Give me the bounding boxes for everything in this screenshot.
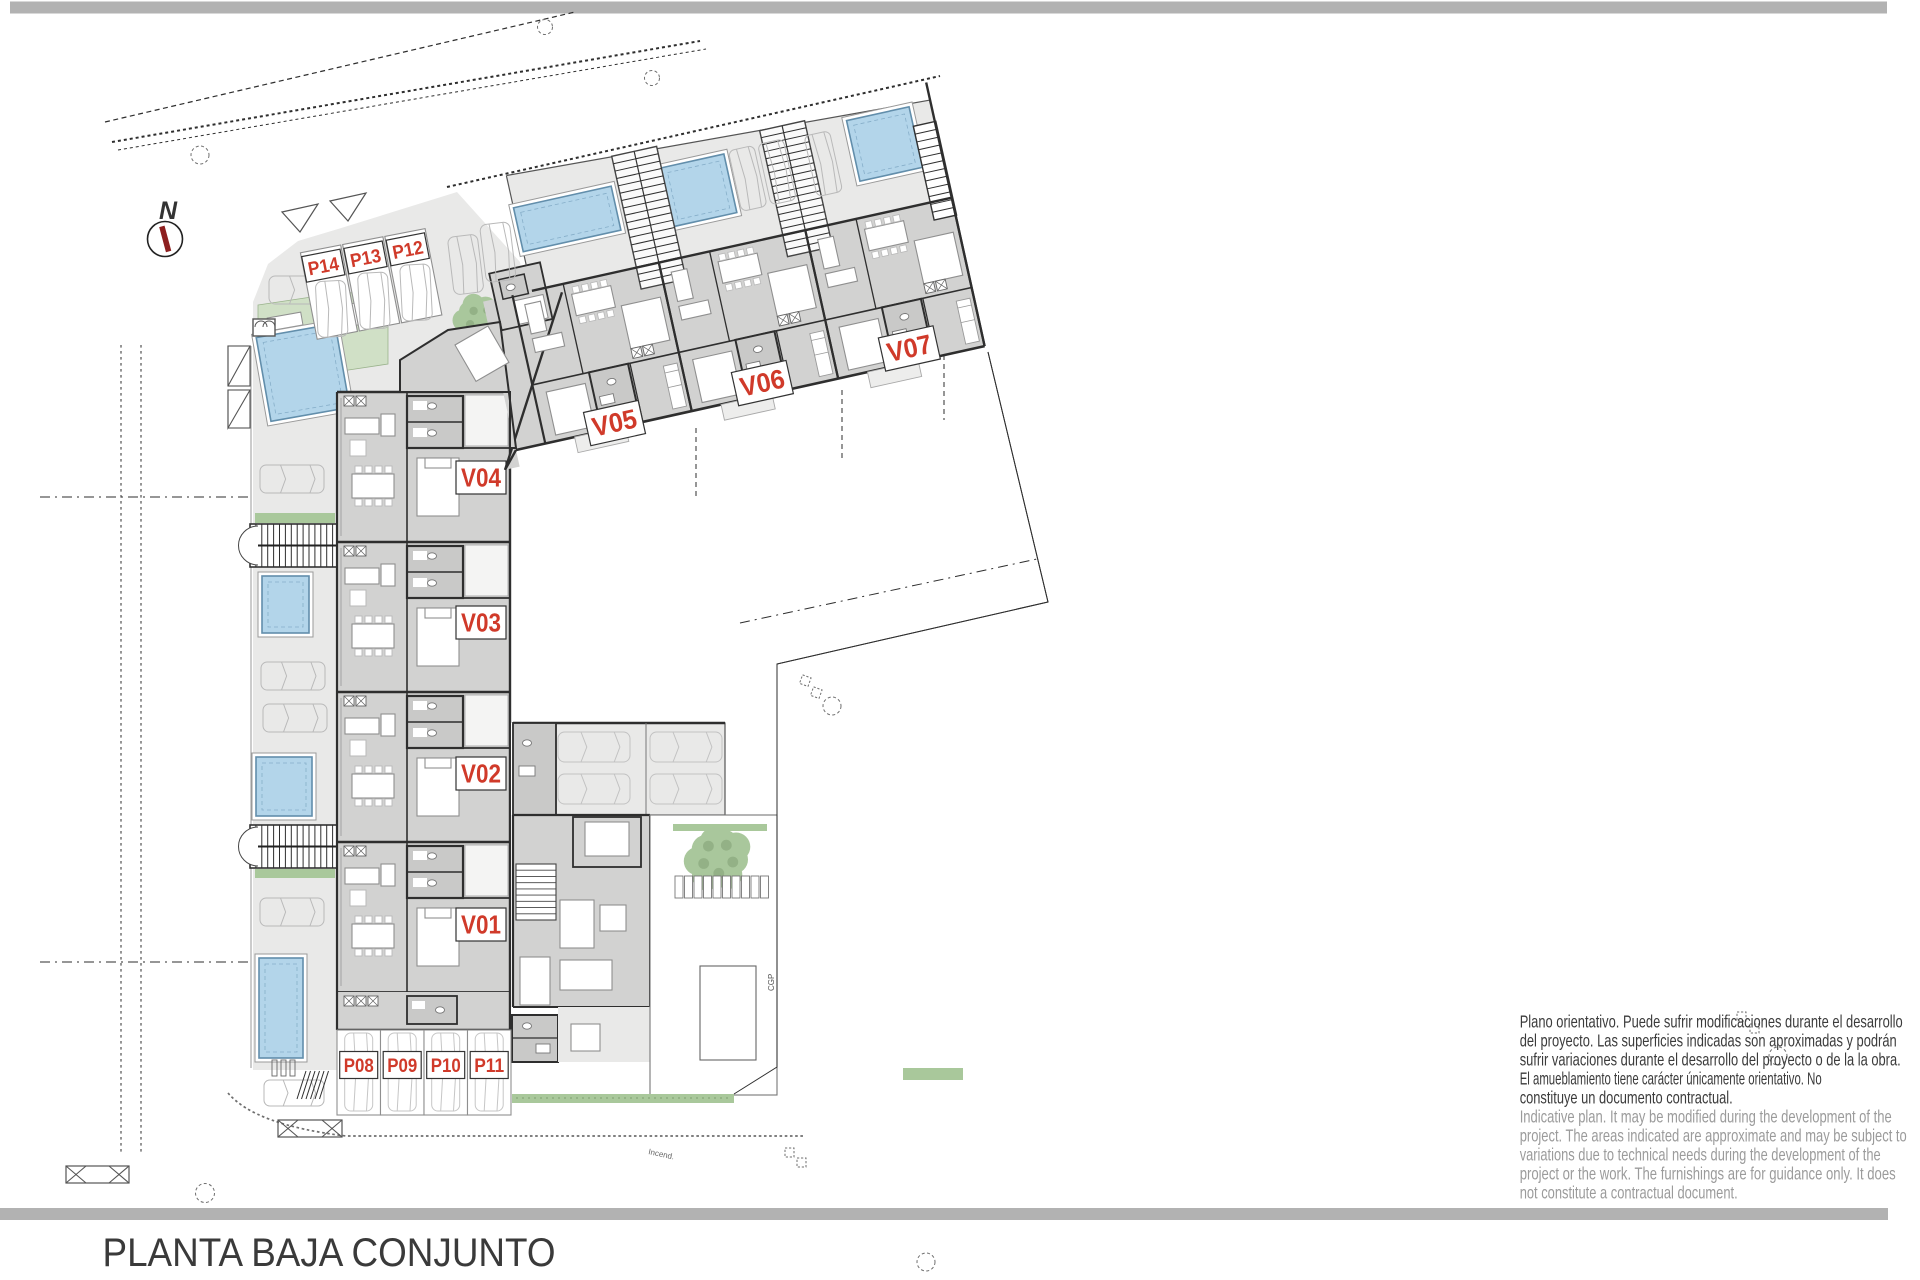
svg-text:CGP: CGP [767,974,776,991]
svg-text:project. The areas indicated a: project. The areas indicated are approxi… [1520,1126,1907,1146]
svg-text:Indicative plan. It may be mod: Indicative plan. It may be modified duri… [1520,1107,1892,1127]
svg-text:V01: V01 [461,910,501,940]
svg-text:V02: V02 [461,759,501,789]
svg-text:Plano orientativo. Puede sufri: Plano orientativo. Puede sufrir modifica… [1520,1011,1903,1031]
svg-text:V04: V04 [461,463,501,493]
svg-text:P09: P09 [387,1056,417,1077]
svg-text:PLANTA BAJA CONJUNTO: PLANTA BAJA CONJUNTO [103,1231,556,1275]
svg-text:del proyecto. Las superficies: del proyecto. Las superficies indicadas … [1520,1030,1897,1050]
svg-text:not constitute a contractual d: not constitute a contractual document. [1520,1183,1738,1203]
svg-text:variations due to technical ne: variations due to technical needs during… [1520,1145,1881,1165]
svg-text:P11: P11 [474,1056,504,1077]
svg-text:sufrir variaciones durante el: sufrir variaciones durante el desarrollo… [1520,1049,1901,1069]
svg-text:N: N [159,197,178,225]
svg-text:project or the work. The furni: project or the work. The furnishings are… [1520,1164,1896,1184]
svg-text:El amueblamiento tiene carácte: El amueblamiento tiene carácter únicamen… [1520,1068,1822,1088]
svg-text:P10: P10 [431,1056,461,1077]
svg-text:P08: P08 [344,1056,374,1077]
svg-text:constituye un documento contra: constituye un documento contractual. [1520,1088,1733,1108]
svg-text:V03: V03 [461,608,501,638]
